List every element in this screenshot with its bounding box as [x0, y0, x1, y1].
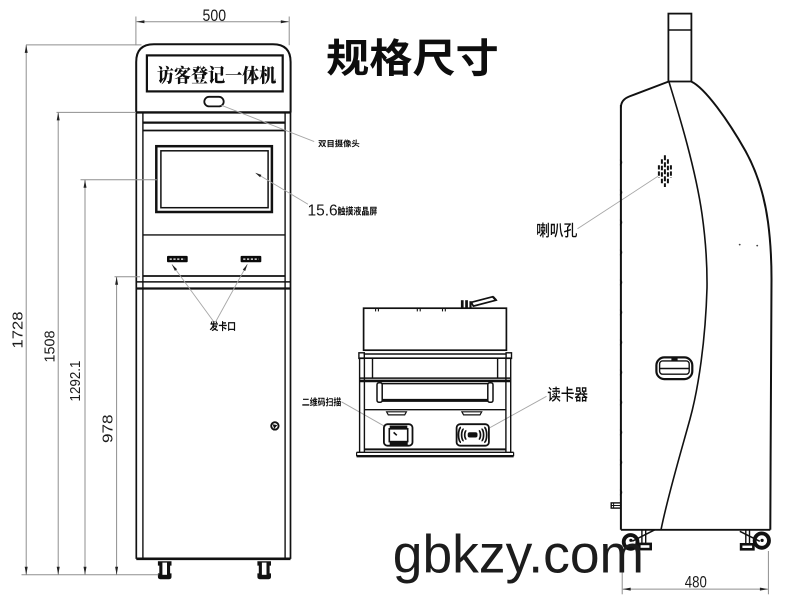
svg-text:1728: 1728	[10, 312, 27, 349]
svg-text:1508: 1508	[41, 331, 58, 363]
svg-text:1292.1: 1292.1	[67, 361, 84, 402]
svg-text:15.6: 15.6	[308, 203, 338, 220]
svg-text:480: 480	[685, 574, 707, 592]
svg-text:978: 978	[100, 415, 117, 444]
svg-text:500: 500	[203, 7, 227, 25]
svg-text:gbkzy.com: gbkzy.com	[393, 525, 644, 584]
